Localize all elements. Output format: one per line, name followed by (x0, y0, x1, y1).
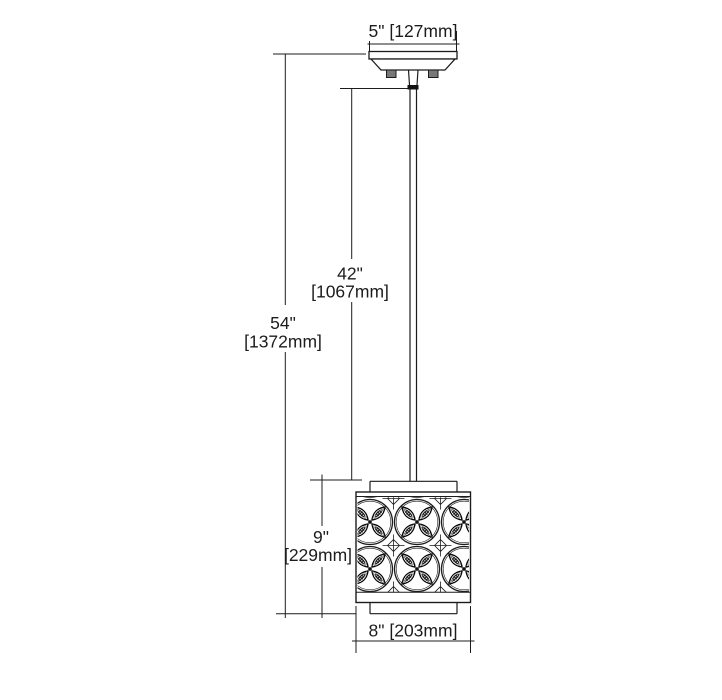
stem-stub (409, 70, 419, 85)
overall-height-mm-label: [1372mm] (244, 332, 322, 352)
rod-drop-mm-label: [1067mm] (311, 282, 389, 302)
shade-width-label: 8" [203mm] (369, 621, 458, 641)
stem-collar (408, 85, 419, 90)
technical-drawing-canvas: 5" [127mm] 42" [1067mm] 54" [1372mm] 9" … (0, 0, 722, 700)
fixture-body (356, 52, 471, 614)
canopy-screw-right (429, 70, 439, 78)
pendant-dimension-drawing: 5" [127mm] 42" [1067mm] 54" [1372mm] 9" … (0, 0, 722, 700)
shade-fitter-bottom (370, 603, 457, 614)
shade-height-inches-label: 9" (313, 527, 329, 547)
overall-height-inches-label: 54" (270, 313, 296, 333)
canopy-body (371, 59, 455, 70)
hanging-rod (410, 90, 417, 482)
shade-height-mm-label: [229mm] (284, 545, 352, 565)
rod-drop-inches-label: 42" (337, 264, 363, 284)
canopy-screw-left (387, 70, 397, 78)
shade-fitter-top (370, 481, 457, 492)
canopy-width-label: 5" [127mm] (369, 21, 458, 41)
shade-ornamental-pattern (358, 497, 470, 592)
canopy-plate (369, 52, 457, 60)
